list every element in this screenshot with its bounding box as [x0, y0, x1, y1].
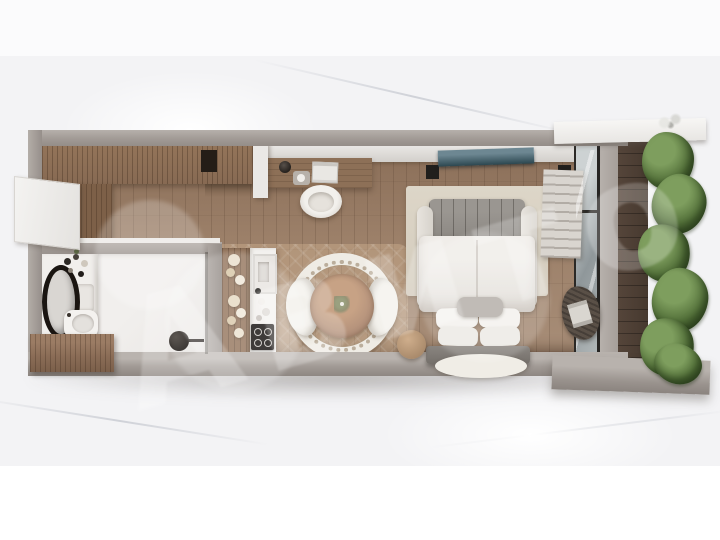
speaker	[426, 165, 439, 179]
table-flowers	[334, 296, 350, 314]
wardrobe	[42, 146, 253, 184]
round-rug	[435, 354, 527, 378]
toiletry-jar	[81, 260, 88, 267]
shower-handle	[187, 339, 204, 342]
toiletry-bottle	[78, 271, 84, 277]
kitchen-item	[262, 308, 270, 316]
decor-plate	[227, 316, 236, 325]
decor-plate	[236, 308, 246, 318]
wardrobe-side-panel	[76, 184, 112, 238]
kitchen-item	[258, 298, 265, 305]
shower-glass-panel	[205, 252, 208, 354]
floorplan-render: Авито	[0, 0, 720, 540]
bathroom-shelf	[60, 238, 220, 243]
toilet-bowl	[72, 314, 94, 333]
desk-speaker	[279, 161, 291, 173]
white-strip	[0, 466, 720, 540]
white-sprig-decor	[656, 112, 684, 130]
kitchen-faucet	[255, 288, 261, 294]
pillow	[480, 326, 521, 346]
cup	[297, 174, 305, 182]
open-closet-door	[14, 176, 80, 250]
pillow	[438, 326, 479, 346]
laptop	[312, 162, 339, 184]
toilet-hinge	[67, 313, 71, 317]
toiletry-bottle	[73, 254, 79, 260]
tufted-headboard	[429, 199, 525, 241]
wardrobe-niche	[201, 150, 217, 172]
decor-plate	[228, 254, 240, 266]
bathroom-wood-cabinet	[30, 334, 114, 372]
burner	[264, 328, 272, 336]
wall-tv	[438, 147, 534, 166]
decor-plate	[234, 328, 244, 338]
decor-plate	[235, 275, 245, 285]
toiletry-jar	[68, 268, 73, 273]
toiletry-bottle	[64, 258, 71, 265]
sink-basin	[258, 262, 269, 282]
kitchen-wood-panel	[222, 248, 250, 366]
bathroom-wall	[208, 244, 222, 356]
top-wall	[28, 130, 628, 146]
burner	[254, 339, 262, 347]
wardrobe-white-end	[253, 142, 268, 198]
kitchen-item	[256, 315, 262, 321]
lumbar-pillow	[457, 297, 503, 317]
wooden-pouf	[397, 330, 426, 359]
burner	[254, 328, 262, 336]
decor-plate	[228, 295, 240, 307]
shower-stool	[169, 331, 189, 351]
desk-chair-seat	[308, 192, 334, 212]
cooktop	[251, 324, 274, 350]
burner	[264, 339, 272, 347]
bottom-wall	[28, 352, 628, 376]
decor-plate	[226, 268, 235, 277]
vertical-garden	[636, 132, 706, 382]
